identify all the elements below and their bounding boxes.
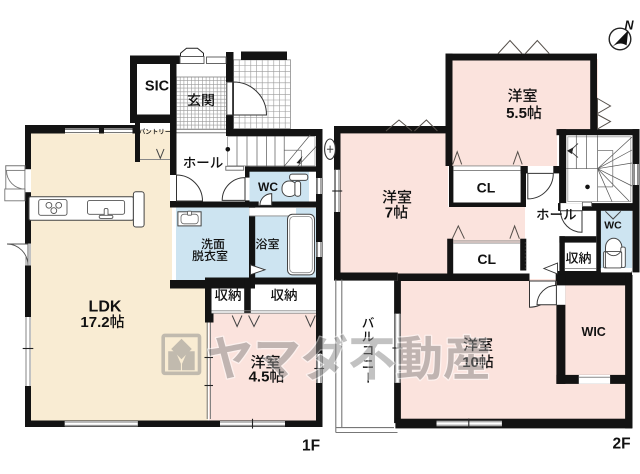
svg-text:4.5: 4.5 (249, 369, 270, 386)
svg-text:5.5: 5.5 (506, 105, 527, 122)
svg-text:CL: CL (477, 180, 496, 196)
svg-text:2F: 2F (612, 436, 630, 453)
svg-text:N: N (624, 19, 634, 33)
svg-text:LDK: LDK (89, 298, 122, 315)
svg-text:1F: 1F (302, 438, 320, 455)
svg-text:17.2: 17.2 (80, 314, 109, 331)
svg-text:CL: CL (477, 251, 496, 267)
svg-text:WIC: WIC (582, 325, 606, 339)
svg-text:SIC: SIC (145, 79, 170, 95)
svg-text:7: 7 (385, 205, 393, 222)
svg-text:WC: WC (604, 219, 622, 231)
svg-text:WC: WC (258, 180, 278, 194)
